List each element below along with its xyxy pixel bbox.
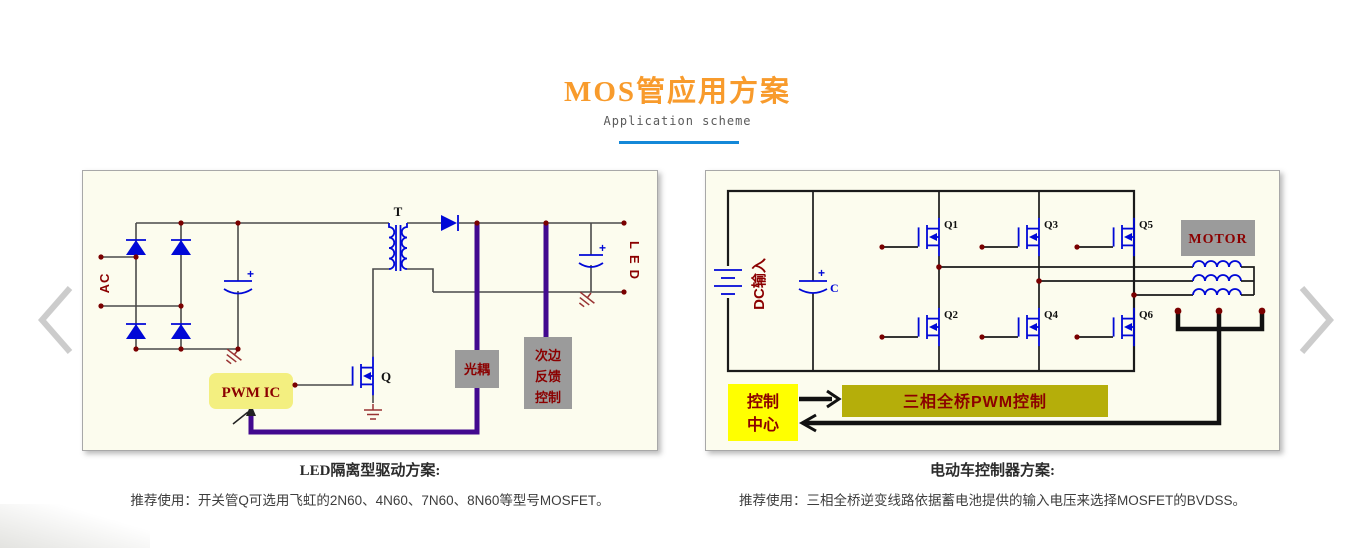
secondary-feedback-box: 次边 反馈 控制 [524, 337, 572, 409]
dc-input-label: DC输入 [750, 258, 768, 310]
output-diode [441, 215, 458, 231]
optocoupler-label: 光耦 [463, 362, 490, 377]
led-driver-diagram: AC + T [82, 170, 658, 451]
scheme-title: 电动车控制器方案: [705, 459, 1280, 480]
ground-icon [575, 287, 598, 310]
pwm-control-bar: 三相全桥PWM控制 [799, 385, 1108, 417]
output-capacitor: + [579, 241, 606, 267]
mosfet-label: Q5 [1139, 219, 1154, 231]
feedback-line: 控制 [535, 390, 561, 405]
ev-controller-caption: 电动车控制器方案: 推荐使用：三相全桥逆变线路依据蓄电池提供的输入电压来选择MO… [705, 459, 1280, 509]
led-label: LED [627, 241, 642, 285]
polarity-plus: + [247, 267, 254, 281]
section-shadow [0, 504, 150, 548]
page-subtitle: Application scheme [0, 114, 1355, 128]
chevron-left-icon [28, 280, 80, 360]
mosfet-label: Q4 [1044, 309, 1059, 321]
led-driver-schematic: AC + T [83, 171, 657, 450]
transformer: T [389, 204, 407, 271]
carousel-prev-button[interactable] [28, 280, 80, 360]
chevron-right-icon [1292, 280, 1344, 360]
feedback-line: 反馈 [535, 369, 561, 384]
mosfet-label: Q2 [944, 309, 959, 321]
capacitor-label: C [830, 281, 839, 295]
scheme-description: 推荐使用：开关管Q可选用飞虹的2N60、4N60、7N60、8N60等型号MOS… [82, 489, 658, 509]
feedback-line: 次边 [535, 348, 562, 363]
control-center-box: 控制 中心 [728, 384, 798, 441]
motor-box: MOTOR [1181, 220, 1255, 256]
polarity-plus: + [818, 266, 825, 280]
application-scheme-section: MOS管应用方案 Application scheme [0, 0, 1355, 548]
scheme-description: 推荐使用：三相全桥逆变线路依据蓄电池提供的输入电压来选择MOSFET的BVDSS… [705, 489, 1280, 509]
motor-label: MOTOR [1188, 232, 1247, 247]
pwm-ic-label: PWM IC [222, 385, 281, 401]
control-center-label: 中心 [747, 415, 779, 434]
mosfet-q-label: Q [381, 369, 391, 384]
page-title: MOS管应用方案 [0, 68, 1355, 110]
pwm-ic-box: PWM IC [209, 373, 293, 409]
optocoupler-box: 光耦 [455, 350, 499, 388]
mosfet-label: Q3 [1044, 219, 1059, 231]
transformer-label: T [394, 204, 403, 219]
battery [714, 270, 742, 294]
mosfet-label: Q6 [1139, 309, 1154, 321]
ev-controller-diagram: DC输入 + C Q1 Q2 [705, 170, 1280, 451]
ground-icon [364, 404, 382, 419]
mosfet-q: Q [353, 357, 392, 395]
pwm-control-label: 三相全桥PWM控制 [903, 392, 1047, 411]
bulk-capacitor: + [224, 267, 254, 294]
mosfet-label: Q1 [944, 219, 958, 231]
title-underline [619, 141, 739, 144]
polarity-plus: + [599, 241, 606, 255]
control-center-label: 控制 [747, 392, 779, 411]
ev-controller-schematic: DC输入 + C Q1 Q2 [706, 171, 1279, 450]
ground-icon [222, 344, 245, 367]
phase-lines [939, 261, 1254, 295]
scheme-title: LED隔离型驱动方案: [82, 459, 658, 480]
carousel-next-button[interactable] [1292, 280, 1344, 360]
dc-link-capacitor: + C [799, 266, 839, 295]
led-driver-caption: LED隔离型驱动方案: 推荐使用：开关管Q可选用飞虹的2N60、4N60、7N6… [82, 459, 658, 509]
ac-label: AC [97, 273, 112, 294]
